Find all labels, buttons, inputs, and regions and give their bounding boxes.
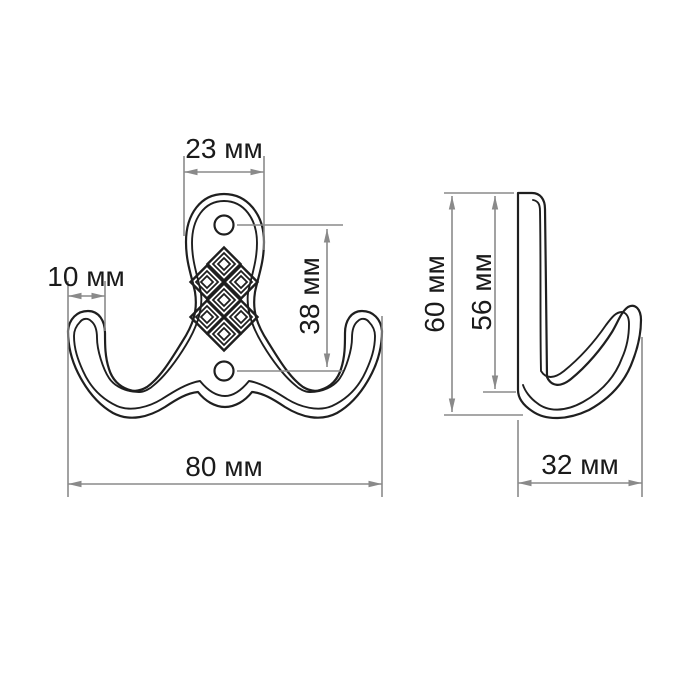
side-view <box>518 193 641 418</box>
dim-label-front-hole-spacing: 38 мм <box>294 257 325 334</box>
dim-label-front-total-width: 80 мм <box>185 451 262 482</box>
dim-side-plate-height: 56 мм <box>466 196 516 392</box>
dim-label-front-tip-width: 10 мм <box>47 261 124 292</box>
front-view <box>68 194 382 418</box>
bottom-screw-hole <box>215 362 234 381</box>
dim-label-front-top-width: 23 мм <box>185 133 262 164</box>
technical-drawing-canvas: 23 мм 10 мм 38 мм 80 мм 60 мм <box>0 0 700 700</box>
dim-front-hole-spacing: 38 мм <box>237 225 343 371</box>
top-screw-hole <box>215 216 234 235</box>
side-outline <box>518 193 641 418</box>
dimensions: 23 мм 10 мм 38 мм 80 мм 60 мм <box>47 133 642 497</box>
dim-side-depth: 32 мм <box>518 337 642 497</box>
dim-label-side-plate-height: 56 мм <box>466 253 497 330</box>
dim-label-side-total-height: 60 мм <box>419 255 450 332</box>
side-bevel-line <box>523 200 629 410</box>
dim-label-side-depth: 32 мм <box>541 449 618 480</box>
